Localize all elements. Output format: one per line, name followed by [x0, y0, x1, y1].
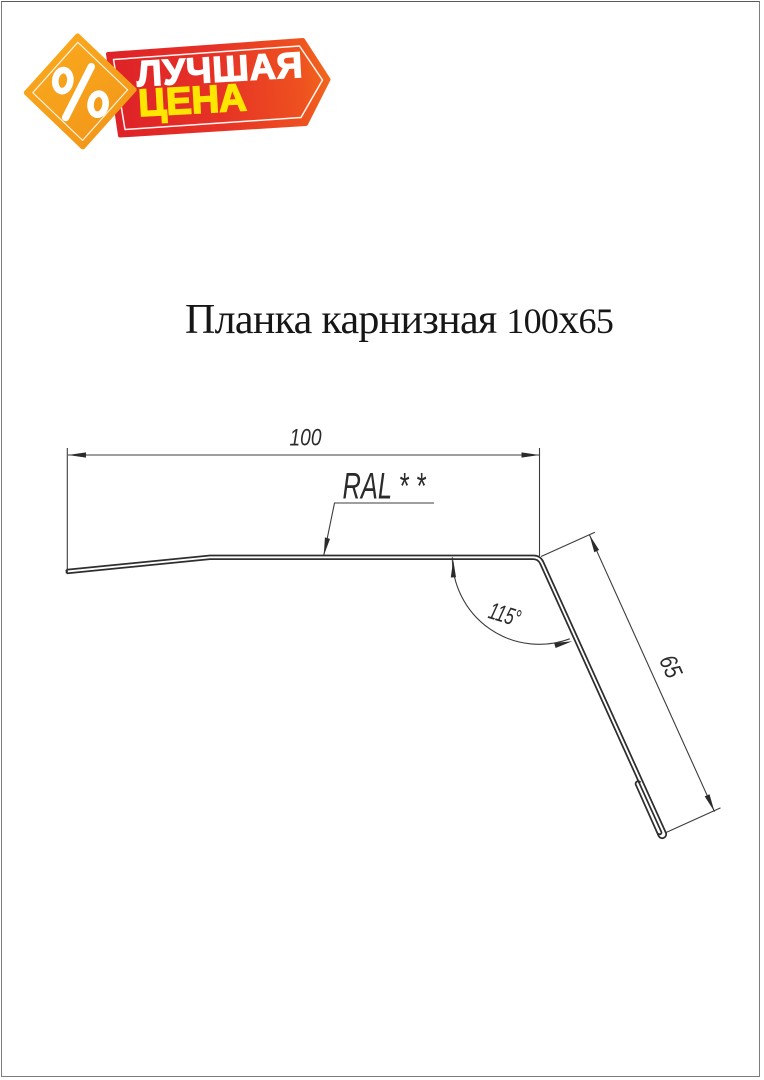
svg-text:100: 100: [290, 425, 322, 452]
svg-text:RAL * *: RAL * *: [343, 465, 427, 507]
svg-text:115°: 115°: [485, 597, 524, 632]
svg-text:65: 65: [653, 651, 687, 682]
